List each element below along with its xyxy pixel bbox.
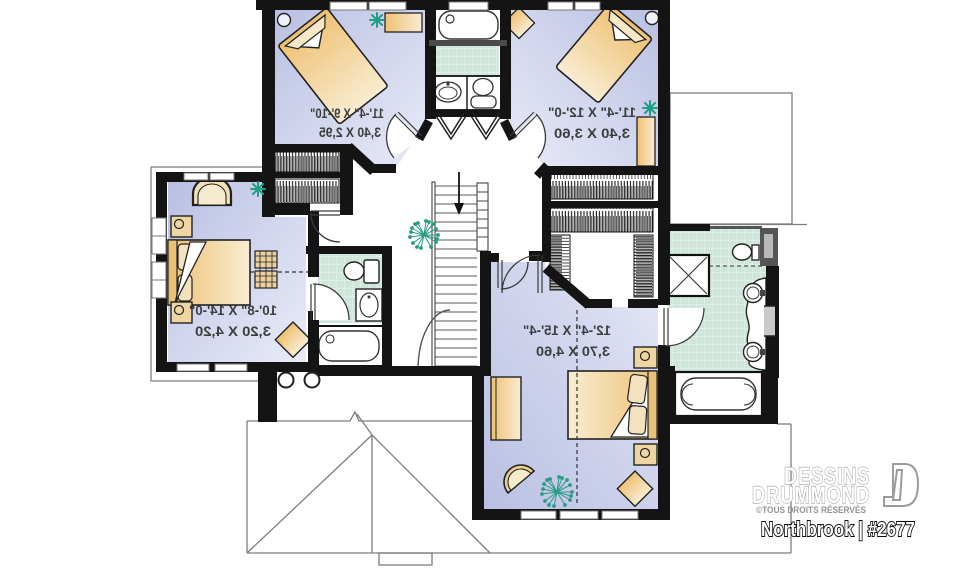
svg-text:11'-4" X 12'-0": 11'-4" X 12'-0" <box>548 105 636 120</box>
svg-text:12'-4" X 15'-4": 12'-4" X 15'-4" <box>523 323 611 338</box>
svg-text:Northbrook | #2677: Northbrook | #2677 <box>761 518 915 541</box>
svg-text:3,40 X 3,60: 3,40 X 3,60 <box>554 126 630 141</box>
svg-text:©TOUS DROITS RÉSERVÉS: ©TOUS DROITS RÉSERVÉS <box>756 505 866 515</box>
svg-text:3,70 X 4,60: 3,70 X 4,60 <box>536 344 610 359</box>
svg-text:3,20 X 4,20: 3,20 X 4,20 <box>195 324 271 339</box>
svg-text:11'-4" X 9'-10": 11'-4" X 9'-10" <box>310 106 384 121</box>
svg-text:3,40 X 2,95: 3,40 X 2,95 <box>319 125 381 140</box>
svg-text:10'-8" X 14'-0": 10'-8" X 14'-0" <box>189 303 277 318</box>
